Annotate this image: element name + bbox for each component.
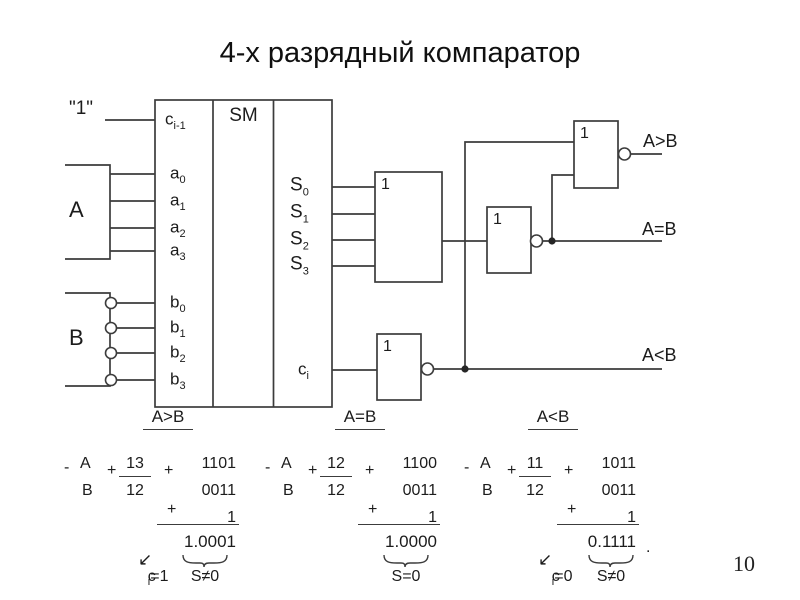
blocks <box>65 100 618 407</box>
binary-a: 1011 <box>578 455 636 473</box>
decimal-b: 12 <box>319 482 353 500</box>
operand-b: B <box>482 482 493 500</box>
sm-pin-b2: b2 <box>170 343 186 363</box>
plus-sign: + <box>567 501 576 519</box>
sm-pin-a1: a1 <box>170 191 186 211</box>
sum-result: 1.0000 <box>363 532 437 552</box>
binary-b-inverted: 0011 <box>178 482 236 500</box>
underbrace-icon <box>182 554 228 569</box>
example-a-equal-b: - A B + 12 12 + 1100 0011 + 1 1.0000 S=0 <box>263 453 458 600</box>
fraction-bar <box>119 476 151 477</box>
decimal-a: 11 <box>518 455 552 473</box>
fraction-bar <box>519 476 551 477</box>
plus-sign: + <box>167 501 176 519</box>
sum-flag: S≠0 <box>180 568 230 586</box>
sum-result: 1.0001 <box>162 532 236 552</box>
operand-b: B <box>82 482 93 500</box>
sum-result: 0.1111 <box>562 532 636 552</box>
sm-pin-s3: S3 <box>290 254 309 276</box>
operand-a: A <box>281 455 292 473</box>
underbrace-icon <box>588 554 634 569</box>
operand-a: A <box>480 455 491 473</box>
underbrace-icon <box>383 554 429 569</box>
sm-pin-b3: b3 <box>170 370 186 390</box>
sm-block-label: SM <box>213 105 274 127</box>
minus-sign: - <box>464 459 469 477</box>
sm-pin-a2: a2 <box>170 218 186 238</box>
plus-sign: + <box>365 462 374 480</box>
lt-gate-label: 1 <box>383 338 392 356</box>
block-a-label: A <box>69 197 84 223</box>
b1-inversion-bubble <box>106 323 117 334</box>
fraction-bar <box>320 476 352 477</box>
sm-pin-a0: a0 <box>170 164 186 184</box>
section-label-eq: A=B <box>335 407 385 430</box>
plus-sign: + <box>564 462 573 480</box>
minus-sign: - <box>265 459 270 477</box>
sum-rule <box>157 524 239 525</box>
sm-pin-ci-1: ci-1 <box>165 110 186 130</box>
sm-pin-s1: S1 <box>290 202 309 224</box>
output-label-lt: A<B <box>642 345 677 366</box>
wire-eq-to-gt-gate <box>552 175 574 241</box>
decimal-b: 12 <box>518 482 552 500</box>
b0-inversion-bubble <box>106 298 117 309</box>
binary-a: 1101 <box>178 455 236 473</box>
b2-inversion-bubble <box>106 348 117 359</box>
sm-pin-s0: S0 <box>290 175 309 197</box>
sm-pin-a3: a3 <box>170 241 186 261</box>
junction-dot-eq <box>548 237 555 244</box>
operand-a: A <box>80 455 91 473</box>
junction-dot-lt <box>461 365 468 372</box>
sum-flag: S≠0 <box>586 568 636 586</box>
example-a-less-b: - A B + 11 12 + 1011 0011 + 1 0.1111 . ↙… <box>462 453 657 600</box>
period: . <box>646 539 650 557</box>
sm-pin-s2: S2 <box>290 229 309 251</box>
plus-sign: + <box>164 462 173 480</box>
decimal-a: 12 <box>319 455 353 473</box>
plus-sign: + <box>308 462 317 480</box>
eq-gate-bubble <box>531 235 543 247</box>
output-label-gt: A>B <box>643 131 678 152</box>
decimal-b: 12 <box>118 482 152 500</box>
carry-flag: ci=1 <box>120 568 178 586</box>
section-label-lt: A<B <box>528 407 578 430</box>
operand-b: B <box>283 482 294 500</box>
output-label-eq: A=B <box>642 219 677 240</box>
lt-gate-bubble <box>422 363 434 375</box>
minus-sign: - <box>64 459 69 477</box>
binary-b-inverted: 0011 <box>379 482 437 500</box>
plus-sign: + <box>507 462 516 480</box>
carry-arrow-icon: ↙ <box>138 550 152 570</box>
decimal-a: 13 <box>118 455 152 473</box>
sm-pin-ci: ci <box>298 360 309 380</box>
gt-gate-label: 1 <box>580 125 589 143</box>
sum-flag: S=0 <box>381 568 431 586</box>
page-number: 10 <box>733 551 755 577</box>
section-label-gt: A>B <box>143 407 193 430</box>
binary-a: 1100 <box>379 455 437 473</box>
constant-one-label: "1" <box>69 98 93 120</box>
block-b-label: B <box>69 325 84 351</box>
binary-b-inverted: 0011 <box>578 482 636 500</box>
plus-sign: + <box>368 501 377 519</box>
sum-rule <box>358 524 440 525</box>
sum-rule <box>557 524 639 525</box>
example-a-greater-b: - A B + 13 12 + 1101 0011 + 1 1.0001 ↙ c… <box>62 453 257 600</box>
carry-arrow-icon: ↙ <box>538 550 552 570</box>
or-gate-label: 1 <box>381 176 390 194</box>
sm-pin-b1: b1 <box>170 318 186 338</box>
sm-pin-b0: b0 <box>170 293 186 313</box>
b3-inversion-bubble <box>106 375 117 386</box>
carry-flag: ci=0 <box>524 568 582 586</box>
eq-gate-label: 1 <box>493 211 502 229</box>
slide: 4-х разрядный компаратор <box>0 0 800 600</box>
gt-gate-bubble <box>619 148 631 160</box>
plus-sign: + <box>107 462 116 480</box>
